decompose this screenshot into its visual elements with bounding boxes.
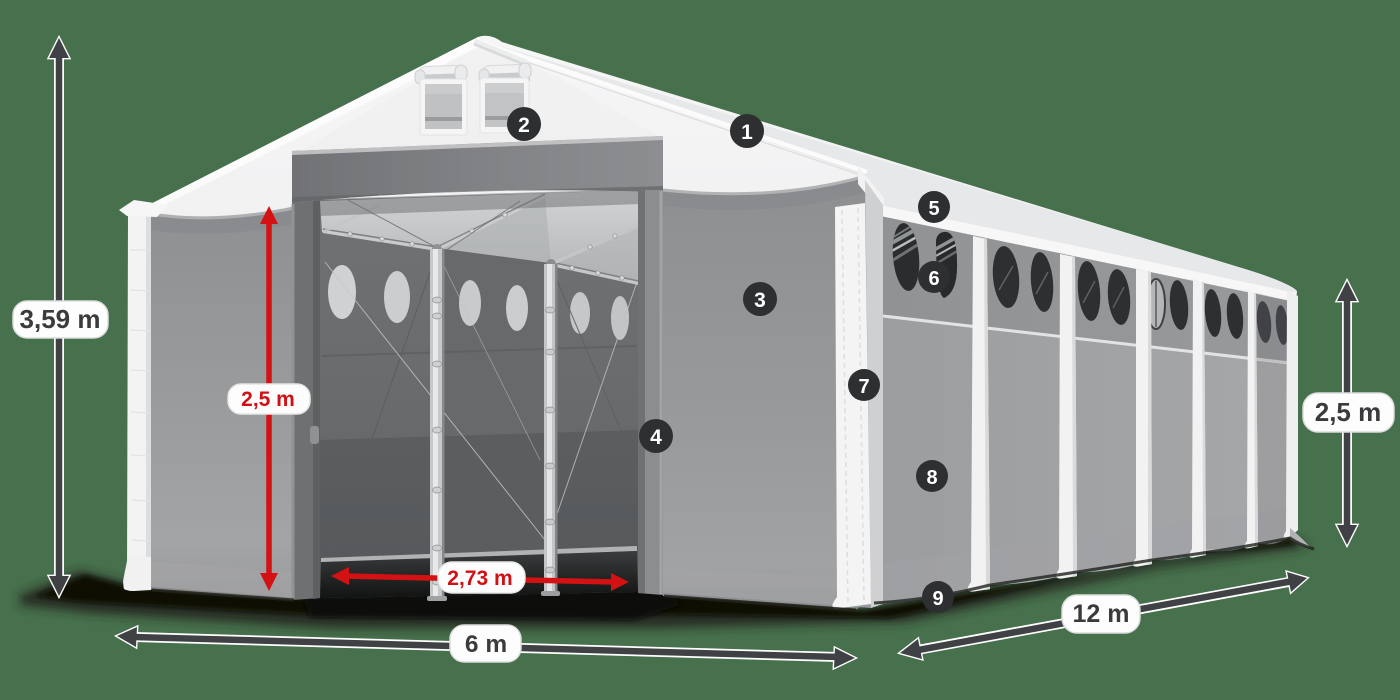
svg-text:4: 4 <box>650 426 662 449</box>
svg-text:2,73 m: 2,73 m <box>447 567 512 590</box>
svg-text:12 m: 12 m <box>1073 600 1130 628</box>
svg-text:2: 2 <box>518 114 530 137</box>
svg-text:3: 3 <box>754 289 766 312</box>
svg-text:8: 8 <box>926 467 937 489</box>
svg-text:6: 6 <box>928 268 939 290</box>
svg-text:1: 1 <box>741 121 753 144</box>
svg-text:2,5 m: 2,5 m <box>1315 397 1382 427</box>
svg-text:3,59 m: 3,59 m <box>20 304 101 334</box>
svg-text:7: 7 <box>858 376 869 398</box>
svg-text:5: 5 <box>928 198 939 220</box>
svg-text:6 m: 6 m <box>465 631 507 658</box>
svg-text:2,5 m: 2,5 m <box>241 388 295 411</box>
svg-text:9: 9 <box>932 588 943 610</box>
